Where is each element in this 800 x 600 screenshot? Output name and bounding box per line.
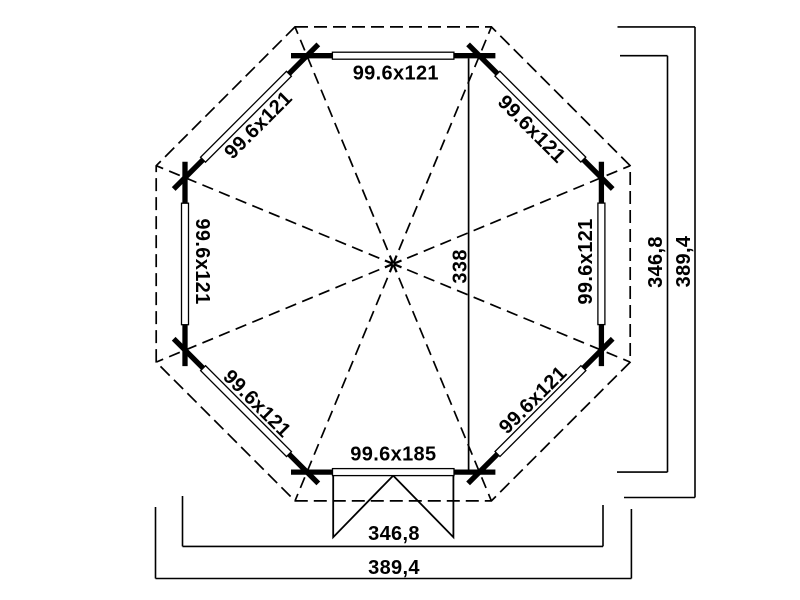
svg-text:99.6x185: 99.6x185 <box>350 444 436 466</box>
svg-text:346,8: 346,8 <box>368 523 420 545</box>
svg-text:389,4: 389,4 <box>673 235 695 287</box>
svg-text:338: 338 <box>449 249 471 283</box>
svg-text:99.6x121: 99.6x121 <box>575 218 597 304</box>
svg-text:389,4: 389,4 <box>368 557 420 579</box>
svg-text:99.6x121: 99.6x121 <box>191 218 213 304</box>
svg-text:346,8: 346,8 <box>645 236 667 288</box>
svg-text:99.6x121: 99.6x121 <box>353 63 439 85</box>
